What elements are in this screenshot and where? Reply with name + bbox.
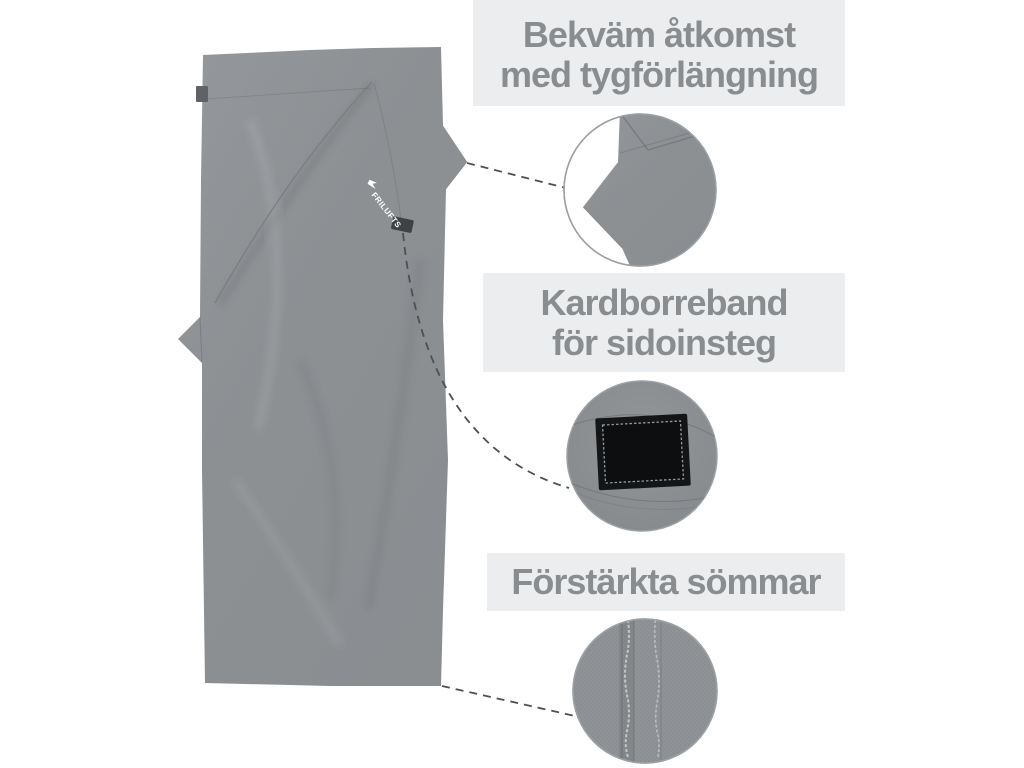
annotation-velcro: Kardborreband för sidoinsteg [483,273,845,372]
product-scene: FRILUFTS [0,0,1024,768]
detail-circle-seams [573,615,717,768]
detail-circle-velcro [567,381,717,531]
hang-tag [196,86,208,102]
liner-fabric [178,47,467,686]
product-feature-image: FRILUFTS [0,0,1024,768]
annotation-label-line: för sidoinsteg [552,323,776,363]
velcro-patch [595,414,691,491]
annotation-label-line: Kardborreband [540,283,787,323]
detail-circle-fabric-extension [564,110,722,274]
connector-seams [442,686,575,716]
liner-body: FRILUFTS [178,47,467,686]
annotation-label-line: Bekväm åtkomst [523,15,795,55]
connector-fabric-extension [467,163,566,188]
annotation-label-line: Förstärkta sömmar [511,562,820,602]
annotation-fabric-extension: Bekväm åtkomst med tygförlängning [473,0,845,106]
annotation-seams: Förstärkta sömmar [487,553,845,611]
annotation-label-line: med tygförlängning [500,55,818,95]
